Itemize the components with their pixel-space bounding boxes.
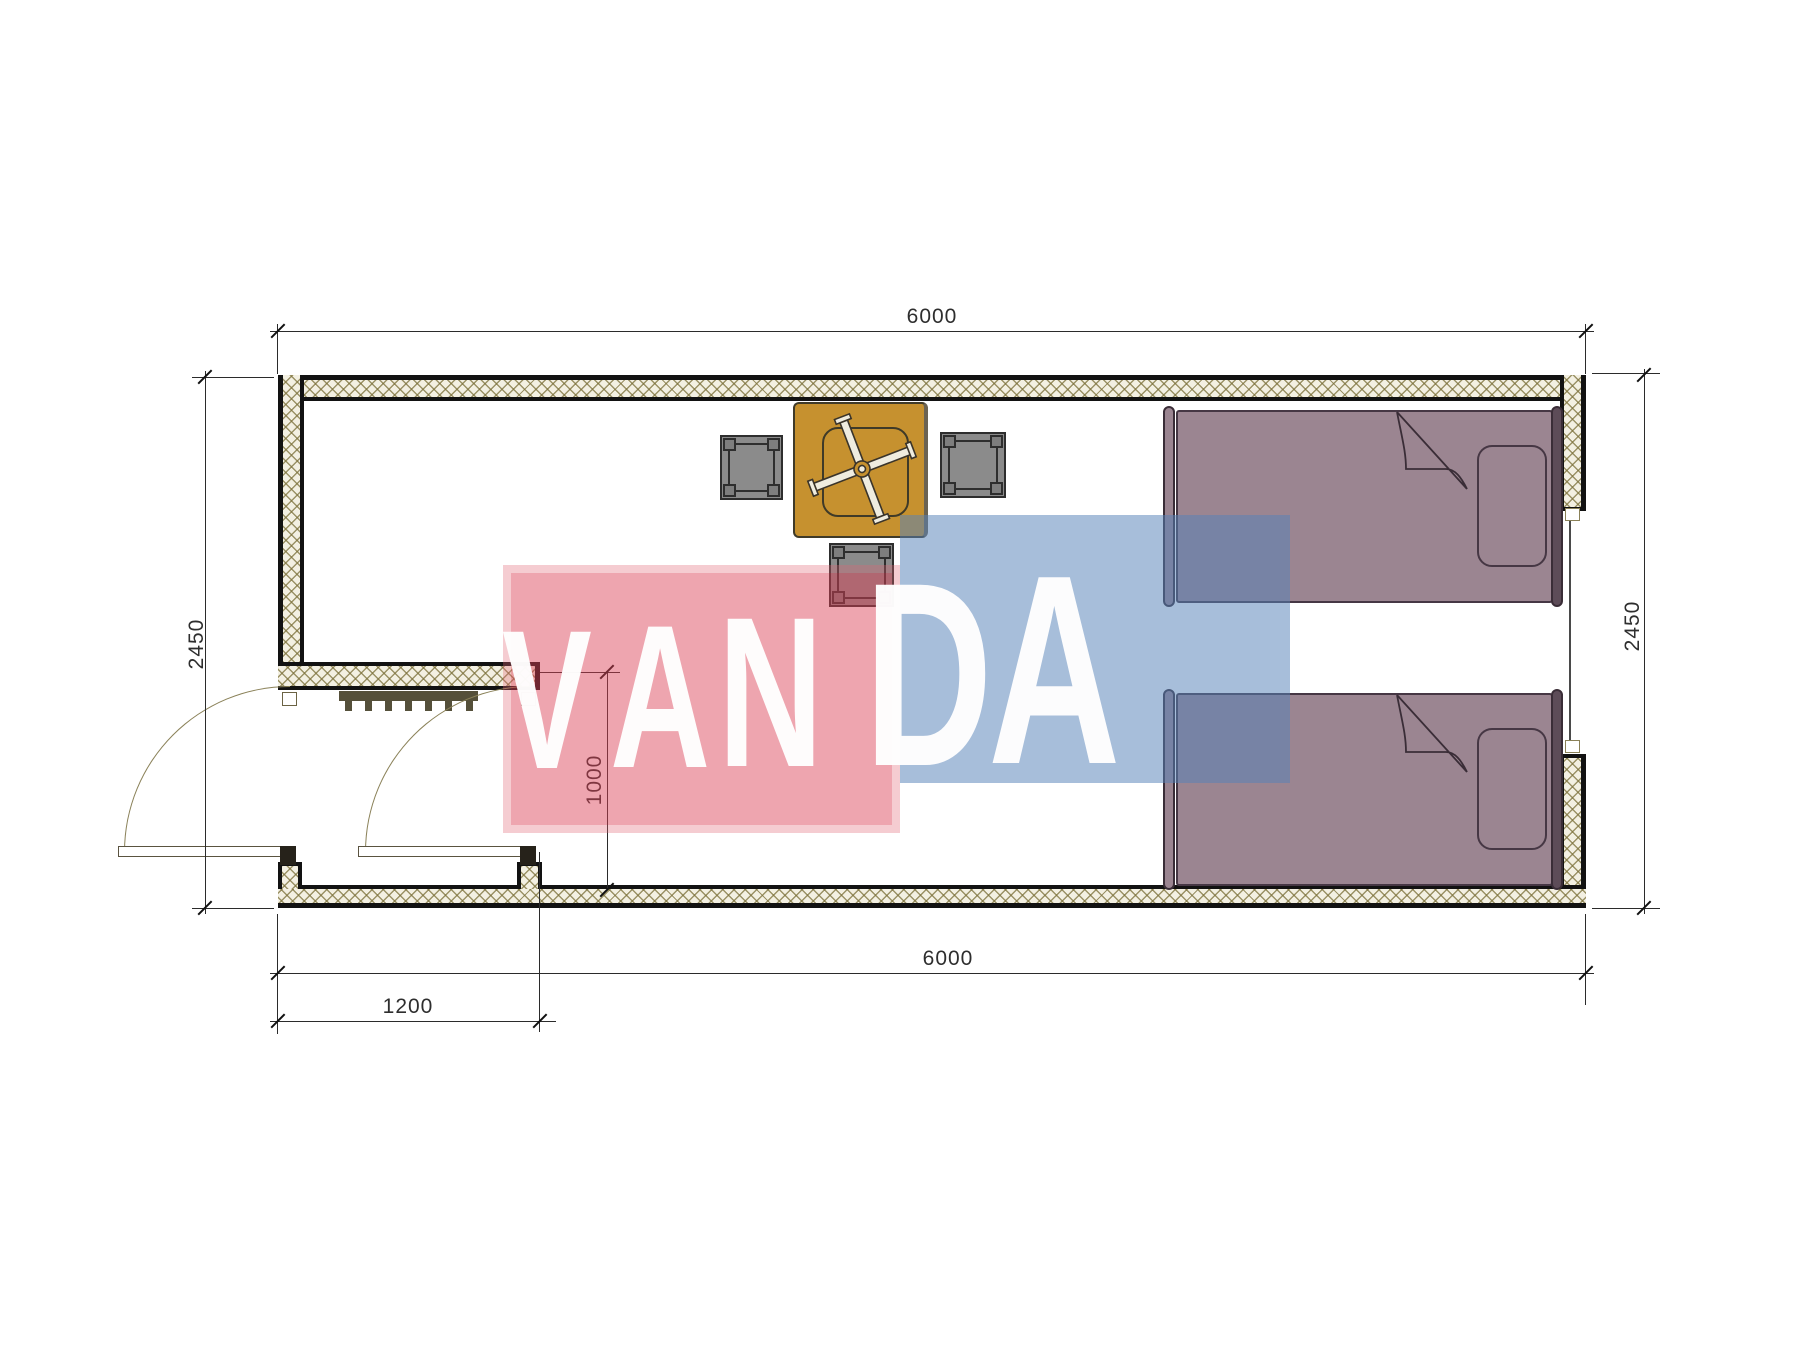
floor-plan-canvas: 6000 6000 2450 2450 1200 [0,0,1800,1350]
dim-ext-line [1585,914,1586,1005]
dim-ext-line [1592,908,1660,909]
dim-label: 6000 [893,947,1003,971]
bed-bottom-blanket-fold [1397,695,1467,772]
dim-line [270,973,1594,974]
dim-label: 6000 [877,305,987,329]
dim-ext-line [539,852,540,1032]
watermark-red-block [503,565,900,833]
dim-label: 1200 [353,995,463,1019]
bed-top-blanket-fold [1397,412,1467,489]
dim-line [270,1021,556,1022]
dim-label: 2450 [185,589,209,699]
dim-ext-line [1592,373,1660,374]
dim-label: 2450 [1621,571,1645,681]
watermark-blue-block [900,515,1290,783]
dim-line [270,331,1594,332]
